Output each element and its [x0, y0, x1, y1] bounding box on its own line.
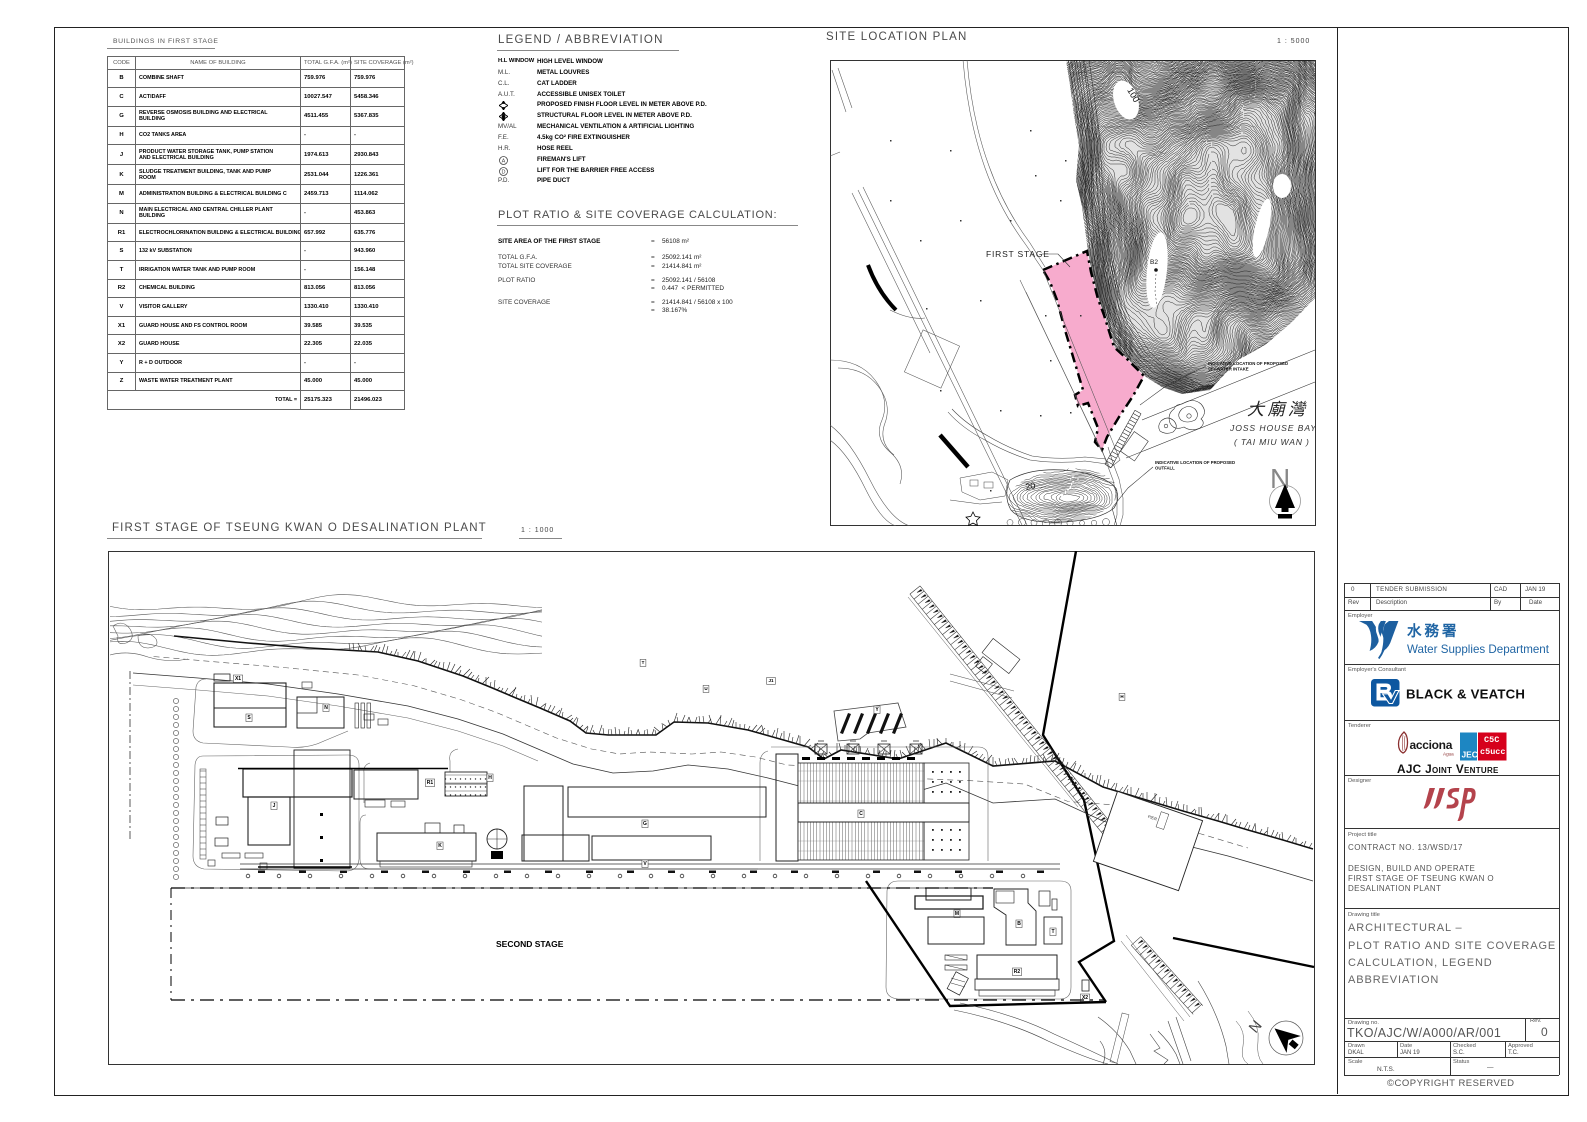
svg-text:H: H	[488, 775, 492, 781]
svg-text:J1: J1	[768, 678, 774, 683]
svg-text:B2: B2	[1150, 259, 1158, 266]
svg-text:N: N	[1246, 1017, 1266, 1036]
svg-text:AJC Joint Venture: AJC Joint Venture	[1397, 762, 1499, 775]
svg-text:JEC: JEC	[1462, 750, 1478, 760]
svg-text:Agua: Agua	[1443, 752, 1454, 757]
svg-text:K: K	[438, 843, 442, 849]
svg-text:J: J	[273, 803, 276, 809]
svg-text:G: G	[643, 821, 647, 827]
svg-text:OUTFALL: OUTFALL	[1155, 466, 1175, 471]
svg-text:INDICATIVE LOCATION OF PROPOSE: INDICATIVE LOCATION OF PROPOSED	[1155, 460, 1235, 465]
svg-text:N: N	[324, 705, 328, 711]
svg-text:A: A	[502, 158, 506, 164]
svg-text:C: C	[859, 811, 863, 817]
svg-text:FIRST STAGE: FIRST STAGE	[986, 249, 1050, 259]
svg-text:20: 20	[1025, 480, 1037, 492]
svg-text:U: U	[704, 686, 707, 691]
svg-text:D: D	[502, 169, 506, 175]
svg-text:JOSS HOUSE BAY: JOSS HOUSE BAY	[1229, 423, 1316, 433]
svg-text:M: M	[955, 911, 959, 917]
svg-text:R1: R1	[427, 780, 434, 786]
svg-text:T: T	[1051, 929, 1054, 935]
svg-text:INDICATIVE LOCATION OF PROPOSE: INDICATIVE LOCATION OF PROPOSED	[1208, 361, 1288, 366]
svg-text:R2: R2	[1014, 969, 1021, 975]
svg-text:SECOND STAGE: SECOND STAGE	[496, 939, 564, 949]
svg-text:T: T	[642, 660, 645, 665]
svg-text:acciona: acciona	[1410, 738, 1453, 752]
svg-text:X1: X1	[235, 676, 241, 682]
svg-text:Water Supplies Department: Water Supplies Department	[1407, 643, 1550, 656]
svg-text:( TAI MIU WAN ): ( TAI MIU WAN )	[1234, 437, 1310, 447]
svg-text:SEAWATER INTAKE: SEAWATER INTAKE	[1208, 367, 1249, 372]
svg-text:c5ucc: c5ucc	[1480, 747, 1506, 757]
svg-text:B: B	[1017, 921, 1021, 927]
svg-text:H: H	[1120, 694, 1123, 699]
svg-text:BLACK & VEATCH: BLACK & VEATCH	[1406, 687, 1525, 702]
svg-text:水務署: 水務署	[1407, 622, 1460, 640]
svg-text:C5C: C5C	[1484, 735, 1499, 745]
svg-text:大廟灣: 大廟灣	[1247, 400, 1309, 419]
